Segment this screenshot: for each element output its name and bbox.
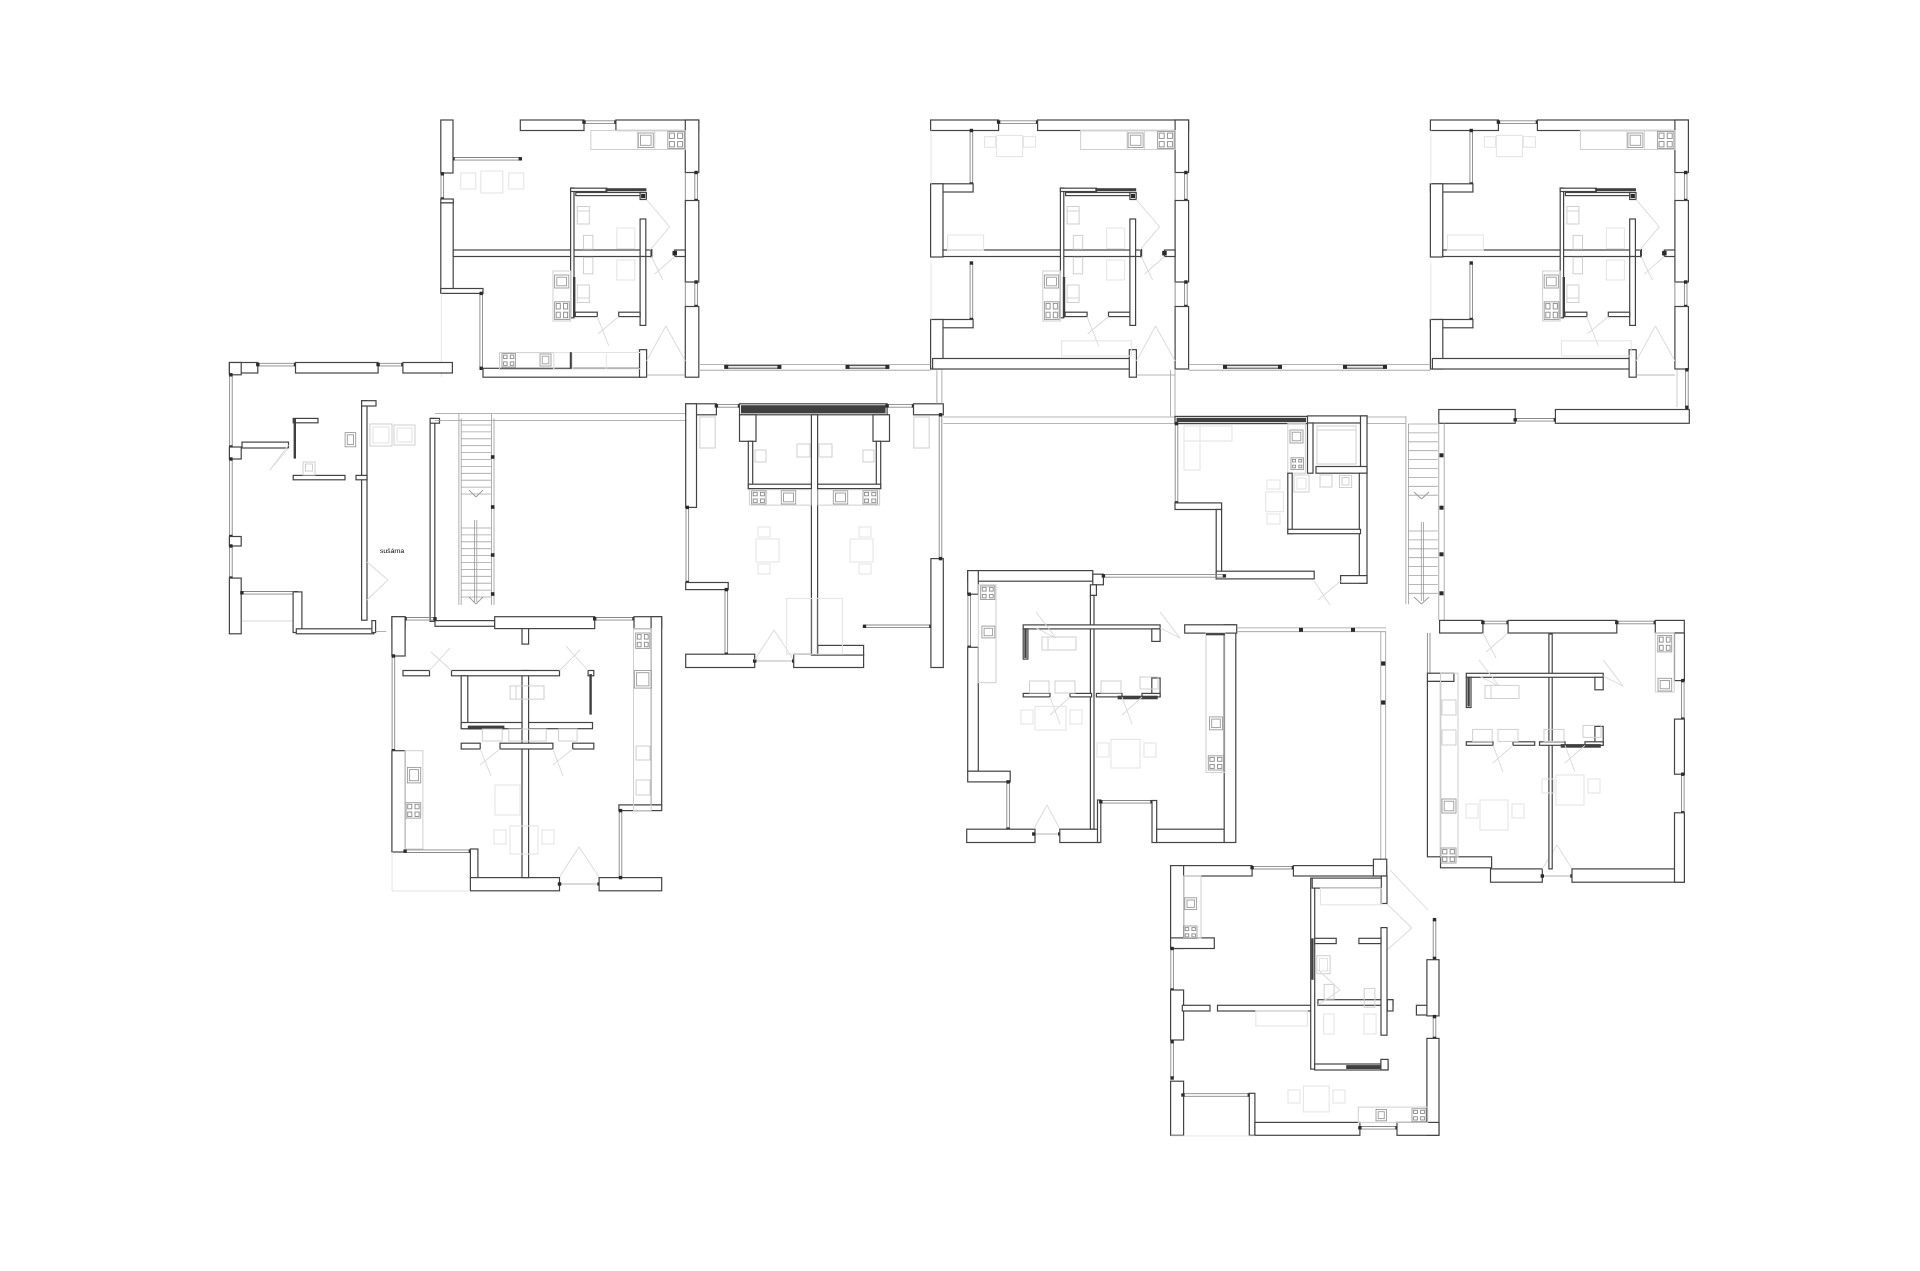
svg-text:sušárna: sušárna: [380, 548, 404, 555]
